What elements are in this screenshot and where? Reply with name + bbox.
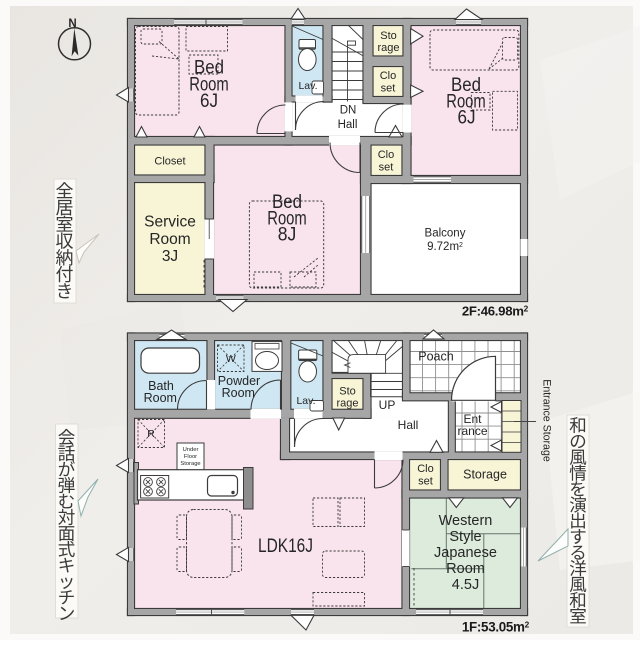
svg-text:3J: 3J [162, 248, 178, 265]
svg-text:Room: Room [149, 231, 190, 248]
svg-text:Under: Under [183, 447, 199, 453]
svg-text:Clo: Clo [380, 70, 397, 82]
svg-text:Room: Room [144, 391, 177, 405]
svg-text:Clo: Clo [417, 463, 434, 475]
svg-text:Style: Style [449, 529, 481, 545]
svg-text:Sto: Sto [380, 30, 397, 42]
svg-text:Japanese: Japanese [434, 545, 497, 561]
svg-text:Sto: Sto [339, 386, 356, 398]
svg-text:2F:46.98m2: 2F:46.98m2 [462, 304, 529, 319]
svg-text:6J: 6J [458, 108, 476, 129]
svg-text:Storage: Storage [463, 468, 507, 482]
svg-text:Room: Room [446, 561, 485, 577]
svg-text:DN: DN [340, 105, 357, 117]
svg-text:Lav.: Lav. [298, 80, 317, 92]
svg-text:9.72m2: 9.72m2 [427, 241, 463, 253]
svg-text:Storage: Storage [180, 461, 200, 467]
svg-text:LDK16J: LDK16J [258, 536, 313, 557]
svg-text:Floor: Floor [184, 454, 197, 460]
svg-text:rage: rage [336, 398, 358, 410]
svg-text:6J: 6J [200, 91, 218, 112]
svg-text:4.5J: 4.5J [452, 577, 479, 593]
svg-text:Western: Western [439, 513, 493, 529]
svg-text:Hall: Hall [398, 418, 419, 432]
svg-text:rage: rage [377, 42, 399, 54]
svg-text:8J: 8J [278, 225, 297, 246]
svg-text:N: N [68, 18, 76, 30]
svg-text:Service: Service [144, 214, 196, 231]
svg-text:W: W [226, 353, 236, 365]
svg-text:R: R [147, 428, 155, 440]
svg-text:UP: UP [379, 398, 396, 412]
svg-text:Clo: Clo [378, 149, 395, 161]
svg-text:Closet: Closet [154, 156, 185, 168]
svg-text:rance: rance [457, 424, 487, 438]
svg-text:Lav.: Lav. [296, 395, 315, 407]
svg-text:Entrance Storage: Entrance Storage [541, 379, 553, 462]
svg-text:Room: Room [222, 386, 255, 400]
svg-text:set: set [381, 83, 396, 95]
svg-text:Balcony: Balcony [425, 228, 466, 240]
svg-text:Poach: Poach [418, 350, 453, 364]
svg-text:1F:53.05m2: 1F:53.05m2 [462, 620, 530, 635]
svg-text:Hall: Hall [338, 119, 358, 131]
svg-text:set: set [418, 476, 433, 488]
svg-text:set: set [379, 162, 394, 174]
